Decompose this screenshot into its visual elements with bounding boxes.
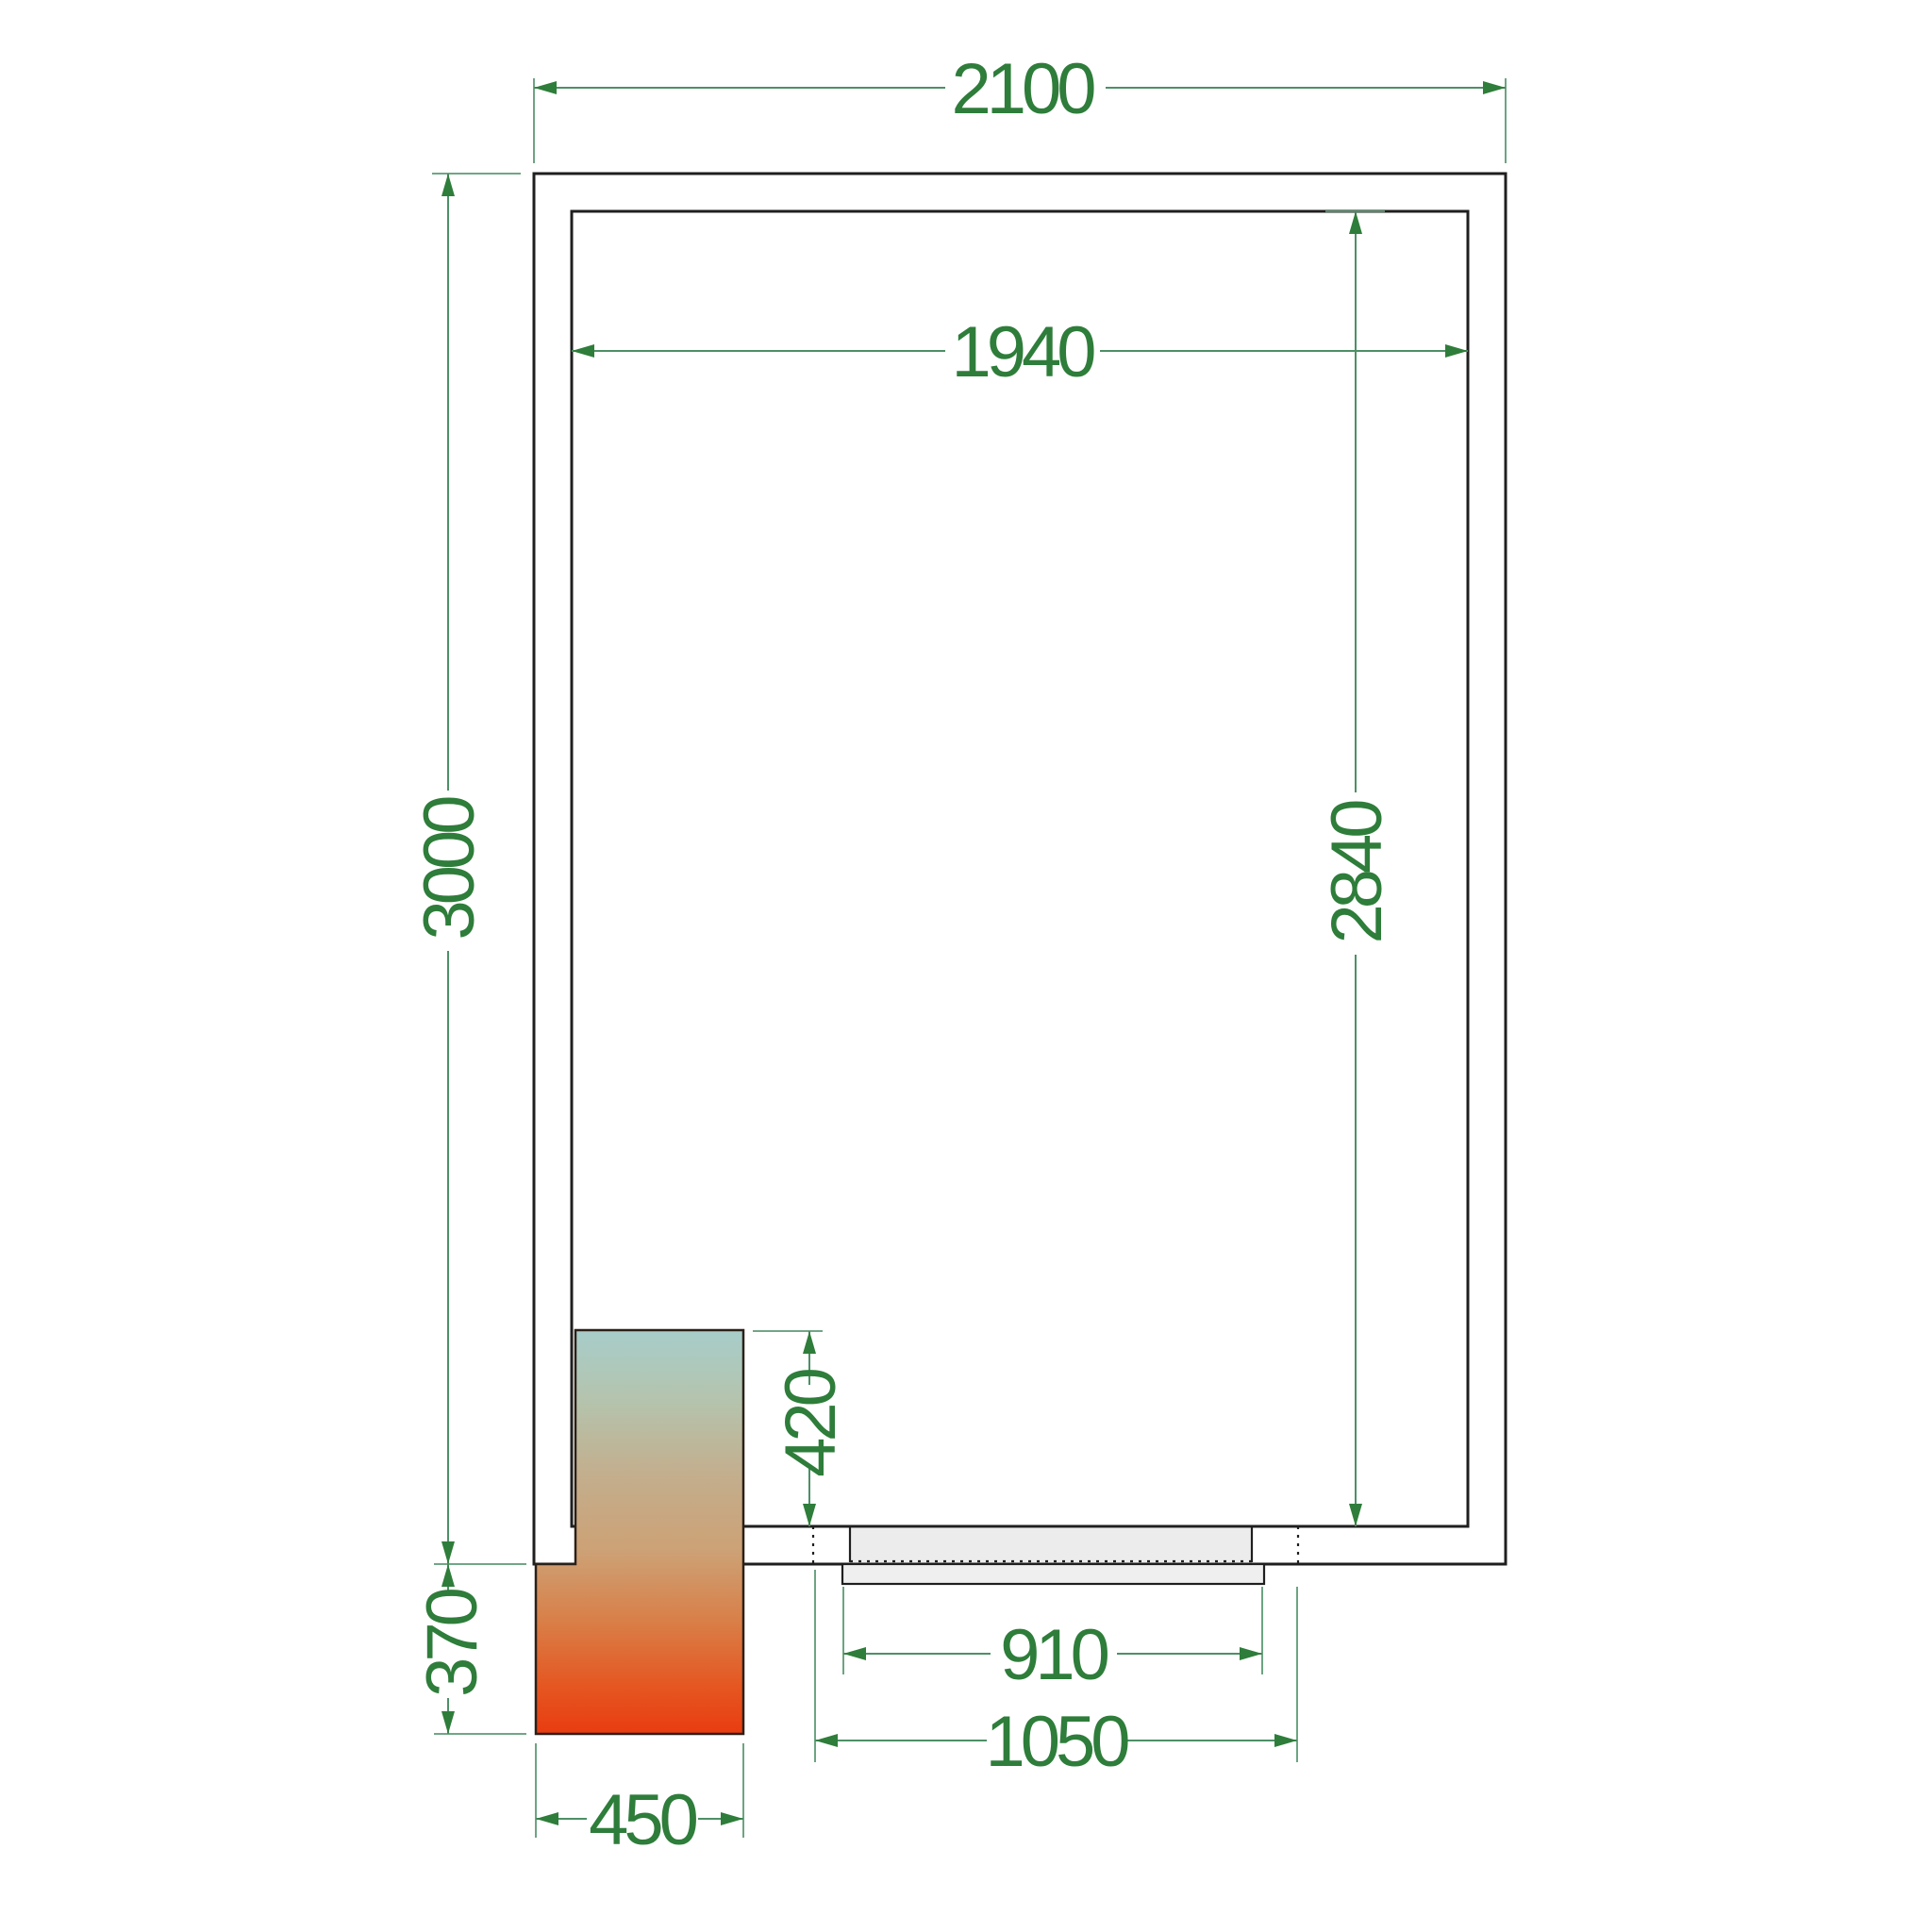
arrowhead-bottom	[441, 1541, 455, 1564]
floor-plan-drawing: 2100 1940 3000 2840 420	[0, 0, 1932, 1932]
arrowhead-right	[721, 1812, 743, 1825]
door-assembly	[813, 1526, 1298, 1584]
arrowhead-top	[441, 1564, 455, 1587]
dim-label-unit-inset: 420	[771, 1369, 851, 1477]
arrowhead-left	[534, 81, 557, 94]
dim-door-leaf: 910	[843, 1587, 1262, 1695]
dim-label-unit-below: 370	[412, 1589, 492, 1697]
dim-unit-below: 370	[412, 1564, 526, 1734]
door-leaf	[842, 1564, 1264, 1584]
dim-unit-width: 450	[536, 1743, 743, 1860]
arrowhead-right	[1483, 81, 1506, 94]
arrowhead-left	[815, 1734, 838, 1747]
dim-outer-height: 3000	[409, 174, 526, 1564]
arrowhead-right	[1274, 1734, 1297, 1747]
dim-label-outer-width: 2100	[951, 49, 1094, 129]
dim-label-inner-width: 1940	[951, 312, 1094, 392]
arrowhead-right	[1240, 1647, 1262, 1660]
dim-label-unit-width: 450	[589, 1780, 697, 1860]
arrowhead-bottom	[441, 1711, 455, 1734]
arrowhead-left	[843, 1647, 866, 1660]
dim-label-outer-height: 3000	[409, 797, 490, 941]
arrowhead-top	[441, 174, 455, 196]
dim-outer-width: 2100	[534, 49, 1506, 163]
dim-label-inner-height: 2840	[1317, 801, 1397, 944]
arrowhead-left	[536, 1812, 558, 1825]
door-frame-panel	[850, 1528, 1252, 1562]
dim-label-door-opening: 1050	[985, 1702, 1128, 1782]
dim-label-door-leaf: 910	[1000, 1615, 1108, 1695]
